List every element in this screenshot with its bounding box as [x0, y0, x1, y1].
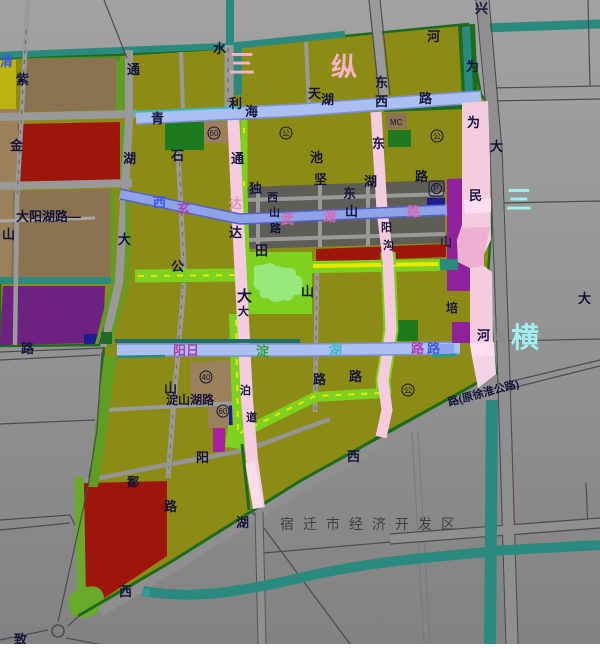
svg-text:公: 公 — [282, 129, 290, 138]
svg-text:达: 达 — [229, 196, 242, 211]
svg-text:河: 河 — [427, 29, 440, 44]
svg-text:西: 西 — [119, 584, 132, 599]
svg-text:清: 清 — [0, 54, 13, 69]
svg-text:山: 山 — [301, 284, 314, 299]
svg-text:路: 路 — [419, 91, 433, 106]
svg-text:为: 为 — [466, 59, 479, 74]
svg-text:路: 路 — [427, 341, 441, 356]
svg-text:阳日: 阳日 — [173, 343, 199, 358]
svg-text:阳: 阳 — [381, 220, 392, 234]
svg-text:大: 大 — [118, 232, 131, 247]
svg-text:大: 大 — [578, 291, 591, 306]
svg-text:60: 60 — [210, 129, 219, 138]
svg-text:致: 致 — [14, 632, 28, 644]
svg-text:东: 东 — [372, 136, 385, 151]
svg-text:三: 三 — [229, 49, 255, 79]
svg-text:湖: 湖 — [323, 209, 336, 224]
svg-text:西: 西 — [347, 449, 360, 464]
svg-text:路: 路 — [411, 341, 425, 356]
svg-text:鄱: 鄱 — [126, 474, 139, 489]
svg-text:路: 路 — [164, 499, 178, 514]
svg-text:海: 海 — [245, 104, 258, 119]
svg-text:为: 为 — [467, 115, 480, 130]
svg-text:湖: 湖 — [364, 174, 377, 189]
svg-text:武: 武 — [281, 212, 294, 227]
svg-text:石: 石 — [170, 148, 184, 163]
svg-text:西: 西 — [267, 191, 278, 204]
svg-text:西: 西 — [375, 94, 388, 109]
svg-text:P: P — [433, 184, 438, 193]
svg-text:道: 道 — [493, 328, 506, 343]
svg-text:湖: 湖 — [123, 151, 136, 166]
svg-text:大: 大 — [238, 304, 249, 318]
svg-text:沟: 沟 — [383, 238, 394, 252]
svg-text:三: 三 — [506, 185, 532, 215]
svg-text:湖: 湖 — [329, 342, 342, 357]
svg-text:公: 公 — [433, 132, 441, 141]
svg-text:青: 青 — [151, 111, 164, 126]
svg-text:紫: 紫 — [16, 72, 29, 87]
svg-text:田: 田 — [255, 243, 268, 258]
svg-text:路: 路 — [407, 204, 421, 219]
svg-text:淀: 淀 — [256, 344, 270, 359]
svg-text:兴: 兴 — [475, 1, 488, 16]
svg-text:通: 通 — [127, 62, 140, 77]
svg-text:东: 东 — [343, 186, 356, 201]
svg-text:山: 山 — [345, 204, 358, 219]
svg-text:宿迁市经济开发区: 宿迁市经济开发区 — [280, 516, 464, 532]
svg-text:水: 水 — [213, 41, 227, 56]
svg-text:阳: 阳 — [196, 450, 209, 465]
svg-text:通: 通 — [231, 151, 244, 166]
svg-text:玄: 玄 — [177, 201, 190, 216]
svg-text:湖: 湖 — [321, 92, 334, 107]
svg-text:横: 横 — [511, 322, 539, 353]
svg-text:大: 大 — [490, 139, 503, 154]
svg-text:公: 公 — [404, 386, 412, 395]
svg-text:独: 独 — [249, 181, 262, 196]
svg-text:天: 天 — [308, 86, 322, 101]
svg-text:路: 路 — [21, 341, 35, 356]
svg-text:河: 河 — [477, 328, 490, 343]
svg-text:东: 东 — [375, 75, 388, 90]
svg-text:公: 公 — [171, 259, 184, 274]
svg-text:60: 60 — [219, 407, 228, 416]
svg-text:道: 道 — [246, 410, 257, 424]
svg-text:利: 利 — [229, 96, 242, 111]
svg-text:池: 池 — [310, 150, 323, 165]
svg-text:泊: 泊 — [240, 383, 251, 397]
svg-text:民: 民 — [469, 188, 482, 203]
svg-text:金: 金 — [9, 138, 24, 153]
svg-text:淀山湖路: 淀山湖路 — [166, 392, 215, 407]
svg-text:坚: 坚 — [314, 172, 327, 187]
svg-text:山: 山 — [2, 227, 15, 242]
svg-text:40: 40 — [202, 373, 211, 382]
svg-text:纵: 纵 — [331, 52, 357, 82]
svg-text:西: 西 — [153, 195, 166, 210]
svg-text:大阳湖路—: 大阳湖路— — [16, 209, 81, 224]
svg-text:湖: 湖 — [236, 515, 249, 530]
svg-text:路: 路 — [415, 169, 429, 184]
svg-text:达: 达 — [229, 225, 242, 240]
svg-text:MC: MC — [390, 118, 403, 127]
svg-text:培: 培 — [446, 300, 458, 315]
svg-text:路: 路 — [349, 369, 363, 384]
svg-text:大: 大 — [237, 287, 252, 305]
svg-text:山: 山 — [269, 205, 280, 219]
svg-text:路: 路 — [313, 372, 327, 387]
